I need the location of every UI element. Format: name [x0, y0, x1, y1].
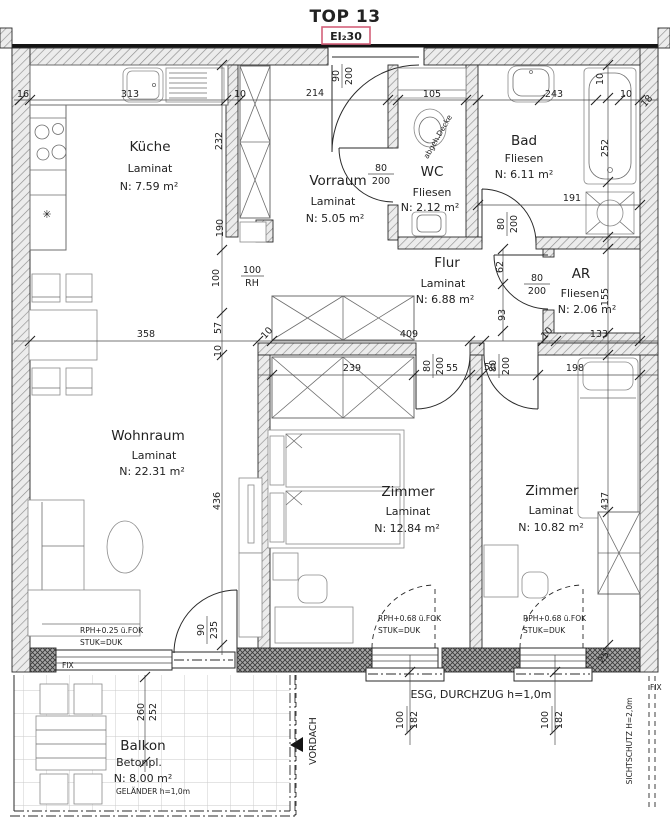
- pier-bottom-2: [237, 648, 372, 672]
- wall-head-zimmer: [470, 343, 484, 355]
- window1-dim-h: 182: [409, 711, 420, 729]
- wall-vorraum-wc-lower: [388, 205, 398, 240]
- fix-right-label: FIX: [650, 683, 662, 692]
- dim-437: 437: [600, 492, 611, 510]
- vordach-arrow-icon: [290, 737, 303, 752]
- mattress: [286, 434, 400, 487]
- dim-10-bad-r: 10: [620, 89, 632, 100]
- rph-wohnraum: RPH+0.25 ü.FOK: [80, 626, 144, 635]
- rph-zimmer2: RPH+0.68 ü.FOK: [523, 614, 587, 623]
- zimmer2-furniture: [484, 358, 640, 598]
- kitchen-left-cabinet: [30, 105, 66, 250]
- balcony-table: [36, 716, 106, 770]
- window1-dim-w: 100: [395, 711, 406, 729]
- dim-93: 93: [497, 309, 508, 321]
- dim-55: 55: [446, 363, 458, 374]
- dim-409: 409: [400, 329, 418, 340]
- room-name-zimmer1: Zimmer: [381, 484, 435, 500]
- vordach-label: VORDACH: [308, 717, 319, 765]
- dresser: [275, 607, 353, 643]
- sideboard-lower: [239, 553, 262, 637]
- fire-rating-label: EI₂30: [330, 30, 362, 43]
- neighbor-wall-stub-left: [0, 28, 12, 48]
- dim-252-bad: 252: [600, 139, 611, 157]
- room-name-wohnraum: Wohnraum: [111, 428, 184, 444]
- exterior-wall-top-right: [424, 48, 658, 65]
- wc-door-dim-h: 200: [372, 176, 390, 187]
- ar-door-dim-h: 200: [528, 286, 546, 297]
- opening-rh-den: RH: [245, 278, 259, 289]
- room-area-balkon: N: 8.00 m²: [114, 772, 173, 785]
- dining-table: [29, 310, 97, 360]
- pier-bottom-3: [442, 648, 520, 672]
- entry-door-dim-h: 200: [344, 67, 355, 85]
- wall-wc-bad: [466, 65, 478, 240]
- zimmer1-door: 80 200: [416, 354, 470, 409]
- balcony-depth-a: 260: [136, 703, 147, 721]
- pillow: [270, 436, 284, 485]
- ar-door-dim-w: 80: [531, 273, 543, 284]
- dim-10-bad-t: 10: [595, 73, 606, 85]
- rph-zimmer1: RPH+0.68 ü.FOK: [378, 614, 442, 623]
- dim-358: 358: [137, 329, 155, 340]
- room-floor-bad: Fliesen: [505, 152, 544, 165]
- balcony-depth-b: 252: [148, 703, 159, 721]
- pier-bottom-1: [30, 648, 56, 672]
- floorplan-canvas: TOP 13 EI₂30: [0, 0, 670, 828]
- bathtub: [584, 68, 636, 184]
- room-name-balkon: Balkon: [120, 738, 165, 754]
- room-name-ar: AR: [572, 266, 591, 282]
- dining-chair: [32, 368, 60, 395]
- room-area-bad: N: 6.11 m²: [495, 168, 554, 181]
- sichtschutz-label: SICHTSCHUTZ H=2,0m: [625, 698, 634, 785]
- dim-62: 62: [495, 261, 506, 273]
- exterior-wall-top-left: [12, 48, 328, 65]
- stuk-wohnraum: STUK=DUK: [80, 638, 123, 647]
- room-floor-wohnraum: Laminat: [132, 449, 177, 462]
- dining-chair: [32, 274, 60, 302]
- vorraum-bench: [240, 222, 266, 242]
- window-zimmer1: [372, 648, 438, 668]
- floorplan-page: TOP 13 EI₂30: [0, 0, 670, 828]
- balcony-chair: [74, 684, 102, 714]
- room-area-flur: N: 6.88 m²: [416, 293, 475, 306]
- dim-214: 214: [306, 88, 324, 99]
- dim-105: 105: [423, 89, 441, 100]
- opening-rh-num: 100: [243, 265, 261, 276]
- plan-header: TOP 13 EI₂30: [0, 7, 670, 48]
- pillow: [270, 493, 284, 542]
- nightstand: [273, 553, 298, 580]
- wall-zimmer1-zimmer2: [470, 355, 482, 655]
- room-area-wohnraum: N: 22.31 m²: [119, 465, 185, 478]
- room-floor-kueche: Laminat: [128, 162, 173, 175]
- dim-57: 57: [213, 322, 224, 334]
- coffee-table: [107, 521, 143, 573]
- dim-313: 313: [121, 89, 139, 100]
- dining-chair: [66, 274, 92, 302]
- balcony-chair: [40, 684, 68, 714]
- entry-door-dim-w: 90: [331, 70, 342, 82]
- room-floor-zimmer2: Laminat: [529, 504, 574, 517]
- room-area-wc: N: 2.12 m²: [401, 201, 460, 214]
- dining-chair: [66, 368, 92, 395]
- window-sill-zimmer1: [366, 668, 444, 681]
- wall-flur-wc: [398, 237, 482, 249]
- dim-16: 16: [17, 89, 29, 100]
- dim-436: 436: [212, 492, 223, 510]
- dim-50: 50: [484, 362, 496, 373]
- room-area-vorraum: N: 5.05 m²: [306, 212, 365, 225]
- wall-vorraum-wc-upper: [388, 65, 398, 148]
- exterior-wall-right: [640, 48, 658, 672]
- entry-threshold: [328, 48, 424, 65]
- desk-chair: [522, 572, 548, 598]
- tv: [248, 485, 254, 543]
- zimmer1-door-dim-h: 200: [435, 357, 446, 375]
- dim-100: 100: [211, 269, 222, 287]
- dim-243: 243: [545, 89, 563, 100]
- railing-note: GELÄNDER h=1,0m: [116, 787, 190, 796]
- wall-ar-left-stub: [543, 249, 554, 257]
- pier-bottom-4: [586, 648, 640, 672]
- window2-dim-h: 182: [554, 711, 565, 729]
- balcony-door: 90 235: [174, 590, 237, 653]
- room-area-zimmer2: N: 10.82 m²: [518, 521, 584, 534]
- room-floor-wc: Fliesen: [413, 186, 452, 199]
- room-area-zimmer1: N: 12.84 m²: [374, 522, 440, 535]
- kitchen-symbol: ✳: [42, 208, 51, 221]
- dim-10-kueche: 10: [234, 89, 246, 100]
- stuk-zimmer1: STUK=DUK: [378, 626, 421, 635]
- dim-10-a: 10: [213, 345, 224, 357]
- wall-flur-zimmer2: [538, 343, 658, 355]
- bad-door-dim-w: 80: [496, 218, 507, 230]
- room-floor-flur: Laminat: [421, 277, 466, 290]
- room-floor-balkon: Betonpl.: [116, 756, 162, 769]
- esg-note: ESG, DURCHZUG h=1,0m: [410, 688, 551, 701]
- bad-fixtures: [508, 66, 636, 234]
- chair: [298, 575, 327, 603]
- exterior-wall-left: [12, 48, 30, 672]
- room-name-vorraum: Vorraum: [309, 173, 366, 189]
- room-name-bad: Bad: [511, 133, 537, 149]
- room-name-zimmer2: Zimmer: [525, 483, 579, 499]
- balcony: Balkon Betonpl. N: 8.00 m² GELÄNDER h=1,…: [10, 675, 319, 816]
- room-floor-ar: Fliesen: [561, 287, 600, 300]
- bad-door-dim-h: 200: [509, 215, 520, 233]
- wall-flur-bad: [536, 237, 640, 249]
- window-zimmer2: [520, 648, 586, 668]
- dim-190: 190: [215, 219, 226, 237]
- balcony-door-dim-w: 90: [196, 624, 207, 636]
- dim-191: 191: [563, 193, 581, 204]
- room-floor-zimmer1: Laminat: [386, 505, 431, 518]
- room-area-ar: N: 2.06 m²: [558, 303, 617, 316]
- room-floor-vorraum: Laminat: [311, 195, 356, 208]
- balcony-chair: [40, 774, 68, 804]
- desk: [484, 545, 518, 597]
- zimmer1-door-dim-w: 80: [422, 360, 433, 372]
- room-name-flur: Flur: [434, 255, 460, 271]
- wc-door-dim-w: 80: [375, 163, 387, 174]
- room-name-kueche: Küche: [129, 139, 170, 155]
- bad-door: 80 200: [482, 189, 536, 243]
- dim-239: 239: [343, 363, 361, 374]
- dim-198: 198: [566, 363, 584, 374]
- balcony-door-dim-h: 235: [209, 621, 220, 639]
- zimmer2-door-dim-h: 200: [501, 357, 512, 375]
- wall-flur-zimmer1: [258, 343, 416, 355]
- window2-dim-w: 100: [540, 711, 551, 729]
- room-name-wc: WC: [421, 164, 444, 180]
- neighbor-wall-stub-right: [658, 28, 670, 48]
- privacy-screen: SICHTSCHUTZ H=2,0m FIX 25: [596, 649, 662, 808]
- room-area-kueche: N: 7.59 m²: [120, 180, 179, 193]
- plan-title: TOP 13: [309, 7, 380, 27]
- dim-133: 133: [590, 329, 608, 340]
- fix-window-label: FIX: [62, 661, 74, 670]
- dim-232: 232: [214, 132, 225, 150]
- stuk-zimmer2: STUK=DUK: [523, 626, 566, 635]
- balcony-chair: [74, 774, 102, 804]
- shower-drain: [597, 200, 623, 226]
